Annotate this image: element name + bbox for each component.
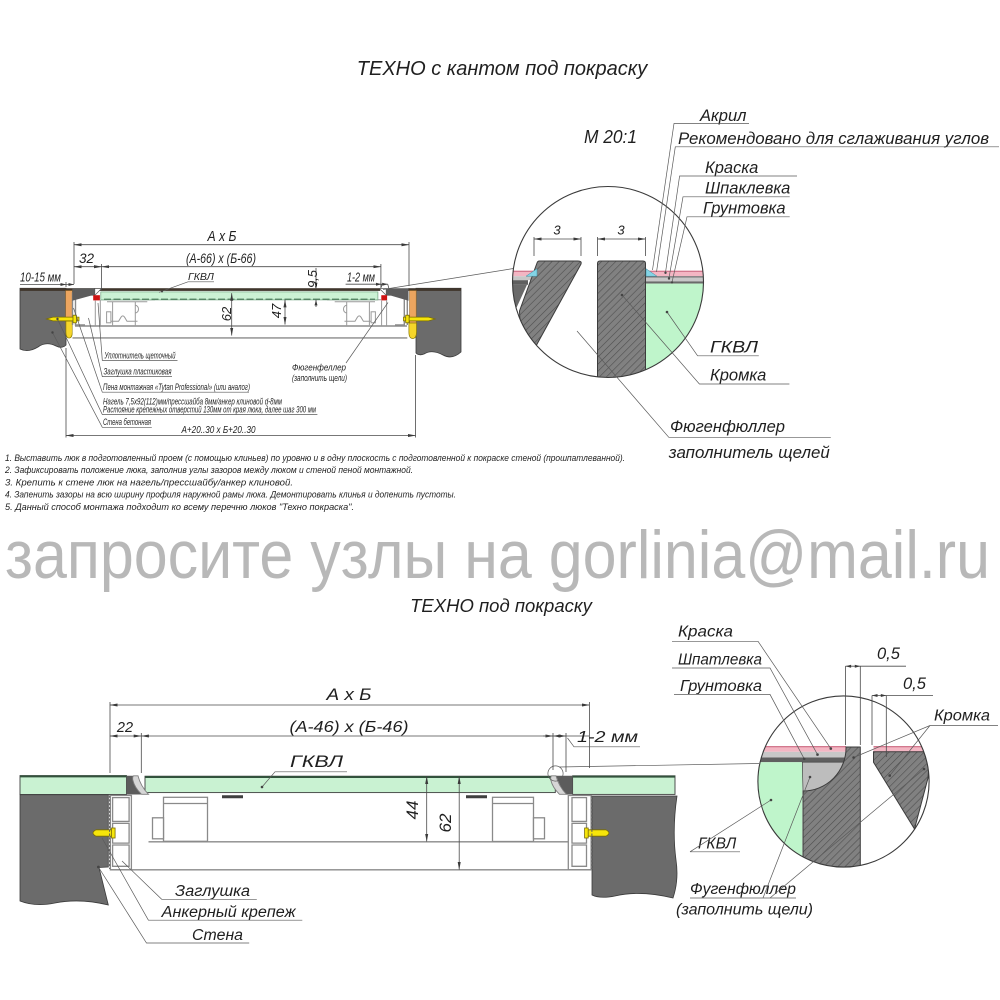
svg-text:ГКВЛ: ГКВЛ [710,339,759,357]
svg-text:1-2 мм: 1-2 мм [577,729,638,746]
svg-text:32: 32 [79,251,95,266]
svg-text:Фюгенфеллер: Фюгенфеллер [292,363,346,373]
svg-text:Уплотнитель щеточный: Уплотнитель щеточный [104,351,176,361]
svg-text:(А-66) х (Б-66): (А-66) х (Б-66) [186,251,256,266]
svg-text:заполнитель щелей: заполнитель щелей [668,444,830,462]
svg-text:А х Б: А х Б [207,229,237,245]
svg-text:(А-46) х (Б-46): (А-46) х (Б-46) [290,719,409,736]
svg-text:3: 3 [553,223,561,238]
svg-text:62: 62 [219,306,234,321]
svg-text:Стена: Стена [192,927,243,944]
svg-text:(заполнить щели): (заполнить щели) [292,373,347,383]
svg-text:Анкерный крепеж: Анкерный крепеж [161,904,297,921]
svg-text:1-2 мм: 1-2 мм [347,271,375,285]
svg-text:47: 47 [269,303,284,318]
svg-text:ТЕХНО с кантом под покраску: ТЕХНО с кантом под покраску [357,58,648,80]
svg-text:Акрил: Акрил [699,107,746,125]
svg-text:М 20:1: М 20:1 [584,127,637,147]
svg-text:62: 62 [436,813,455,832]
svg-text:Краска: Краска [705,159,758,177]
svg-text:4. Запенить зазоры на всю шири: 4. Запенить зазоры на всю ширину профиля… [5,490,456,501]
svg-text:0,5: 0,5 [903,675,927,693]
svg-text:А+20..30 х Б+20..30: А+20..30 х Б+20..30 [181,425,256,436]
svg-text:запросите узлы на gorlinia@mai: запросите узлы на gorlinia@mail.ru [5,517,990,593]
svg-text:1. Выставить люк в подготовлен: 1. Выставить люк в подготовленный проем … [5,453,625,464]
svg-text:10-15 мм: 10-15 мм [20,271,61,285]
svg-text:Шпатлевка: Шпатлевка [678,652,762,669]
svg-text:Рекомендовано для сглаживания: Рекомендовано для сглаживания углов [678,130,989,148]
svg-text:44: 44 [403,801,422,820]
svg-text:ГКВЛ: ГКВЛ [698,836,737,853]
svg-text:0,5: 0,5 [877,645,901,663]
svg-text:А х Б: А х Б [325,686,371,704]
svg-text:Кромка: Кромка [710,367,766,385]
svg-text:(заполнить щели): (заполнить щели) [676,902,813,919]
svg-text:3. Крепить к стене люк на наге: 3. Крепить к стене люк на нагель/прессша… [5,477,293,488]
svg-text:3: 3 [617,223,625,238]
svg-text:ГКВЛ: ГКВЛ [290,752,343,771]
svg-text:5. Данный способ монтажа подхо: 5. Данный способ монтажа подходит ко все… [5,502,354,513]
svg-text:Стена бетонная: Стена бетонная [103,417,151,427]
svg-text:Кромка: Кромка [934,708,990,725]
svg-text:Шпаклевка: Шпаклевка [705,180,790,198]
svg-text:Пена монтажная «Tytan Professi: Пена монтажная «Tytan Professional» (или… [103,382,250,392]
svg-text:Заглушка: Заглушка [175,883,250,900]
svg-text:Фюгенфюллер: Фюгенфюллер [670,418,785,436]
svg-text:ГКВЛ: ГКВЛ [188,271,215,283]
svg-text:2. Зафиксировать положение люк: 2. Зафиксировать положение люка, заполни… [4,465,413,476]
svg-text:Грунтовка: Грунтовка [680,678,762,695]
svg-text:9,5: 9,5 [305,269,320,288]
svg-text:Заглушка пластиковая: Заглушка пластиковая [104,367,172,377]
svg-text:ТЕХНО под покраску: ТЕХНО под покраску [410,595,593,616]
svg-text:Растояние крепежных отверстий: Растояние крепежных отверстий 130мм от к… [103,405,316,415]
svg-text:22: 22 [116,720,133,736]
svg-text:Краска: Краска [678,624,733,641]
svg-text:Грунтовка: Грунтовка [703,200,786,218]
